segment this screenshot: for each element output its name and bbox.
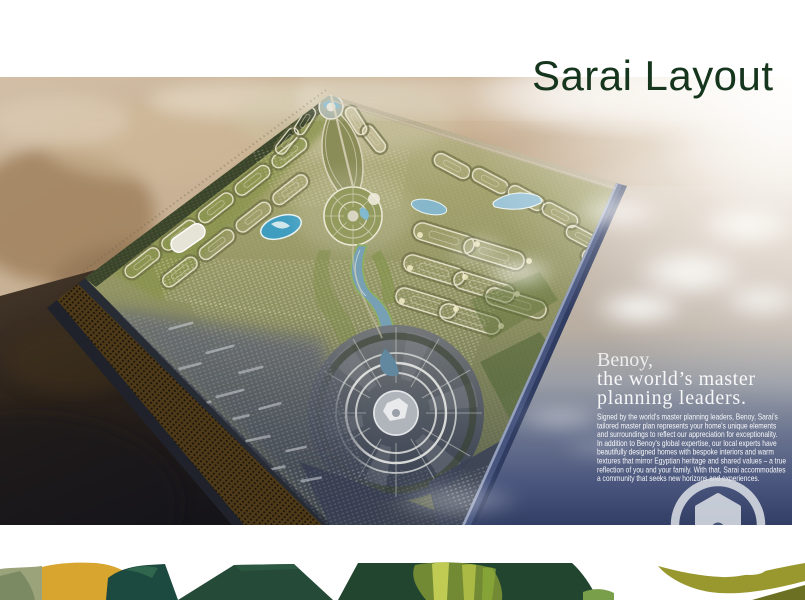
svg-text:planning leaders.: planning leaders. <box>597 387 746 409</box>
svg-text:Sarai Layout: Sarai Layout <box>532 52 773 99</box>
